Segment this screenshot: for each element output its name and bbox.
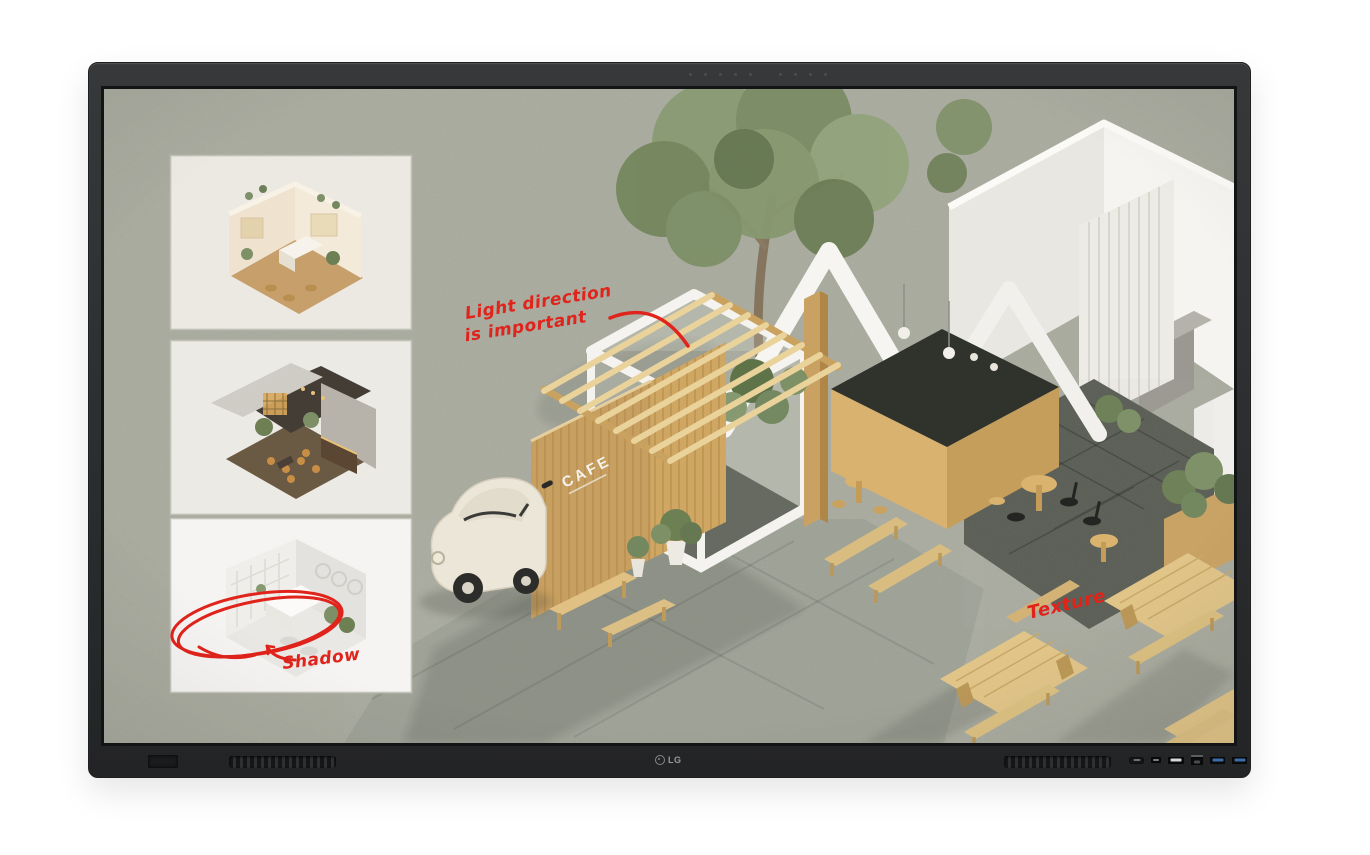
screen-content: CAFE <box>104 89 1234 743</box>
front-ports <box>1129 755 1247 765</box>
ir-sensor <box>148 755 178 768</box>
vent-dots <box>779 73 827 76</box>
screen: CAFE <box>101 86 1237 746</box>
front-button <box>1129 757 1144 764</box>
interactive-display: CAFE <box>88 62 1251 778</box>
usb3-port <box>1232 757 1247 764</box>
lg-logo: LG <box>655 755 682 765</box>
usb3-port <box>1210 757 1225 764</box>
small-port <box>1151 757 1161 763</box>
bottom-bezel: LG <box>89 746 1250 777</box>
lg-emblem-icon <box>655 755 665 765</box>
speaker-grille-right <box>1004 756 1111 768</box>
lan-port <box>1191 755 1203 765</box>
usb-port <box>1168 757 1184 764</box>
lg-logo-text: LG <box>668 755 682 765</box>
screen-vignette <box>104 89 1234 743</box>
speaker-grille-left <box>229 756 336 768</box>
product-photo: { "device": { "brand": "LG", "bezel_colo… <box>0 0 1370 855</box>
vent-dots <box>689 73 752 76</box>
